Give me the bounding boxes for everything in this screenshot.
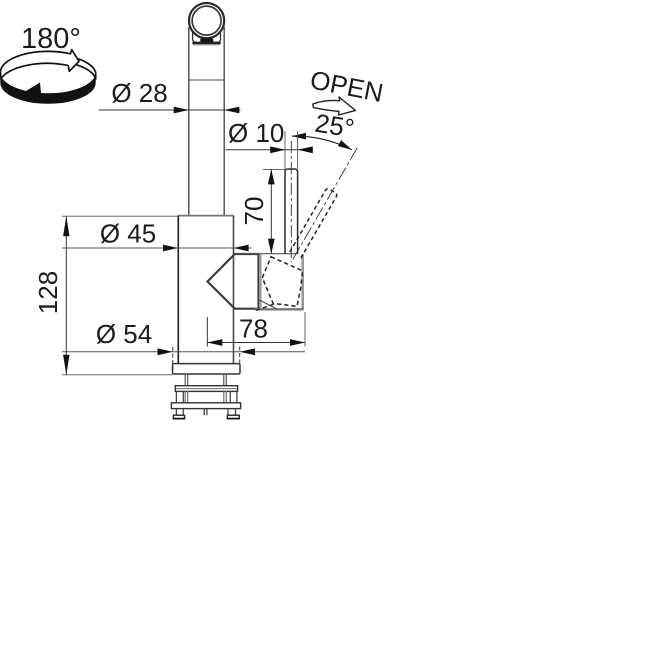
svg-text:78: 78	[239, 314, 268, 344]
svg-text:Ø 10: Ø 10	[228, 118, 284, 148]
svg-text:Ø 45: Ø 45	[100, 219, 156, 249]
svg-text:Ø 28: Ø 28	[111, 78, 167, 108]
svg-text:25°: 25°	[313, 108, 357, 144]
svg-text:128: 128	[33, 271, 63, 314]
svg-text:70: 70	[239, 197, 269, 226]
svg-text:180°: 180°	[21, 23, 81, 55]
svg-text:Ø 54: Ø 54	[96, 319, 152, 349]
